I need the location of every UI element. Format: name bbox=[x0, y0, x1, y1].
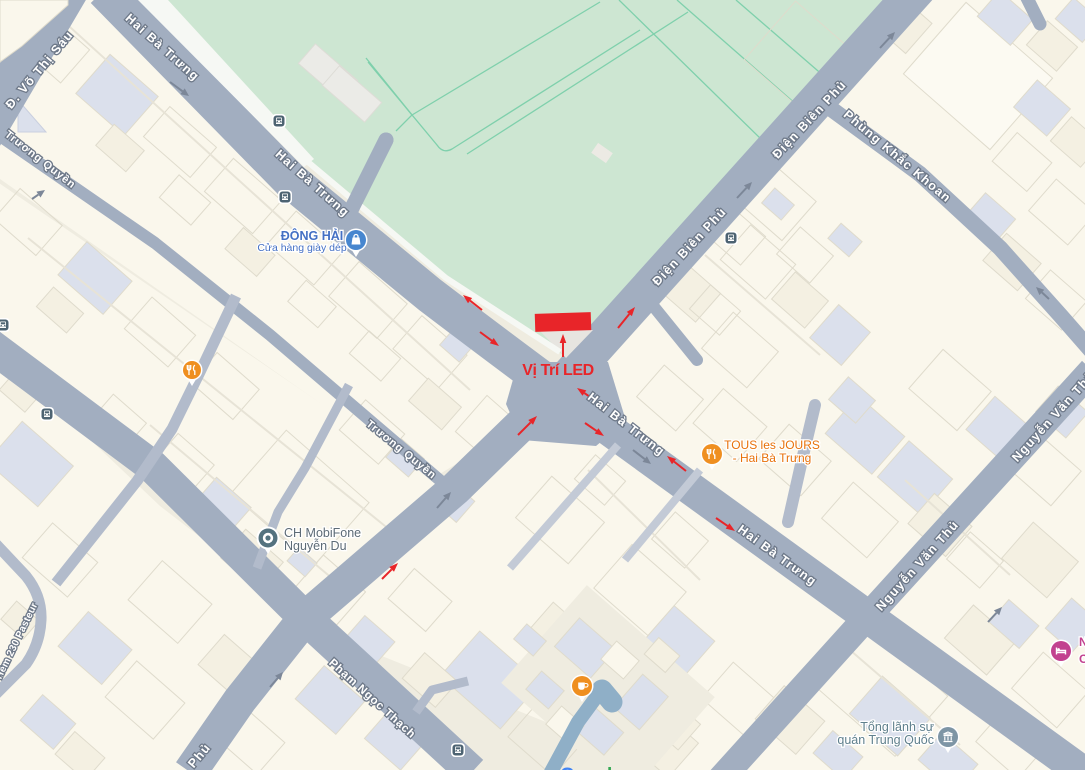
svg-text:Nguyễn Du: Nguyễn Du bbox=[284, 538, 347, 553]
svg-text:o: o bbox=[574, 765, 586, 770]
svg-text:quán Trung Quốc: quán Trung Quốc bbox=[837, 733, 934, 747]
svg-text:Nh: Nh bbox=[1079, 635, 1085, 649]
svg-text:e: e bbox=[612, 765, 623, 770]
svg-text:Vị Trí LED: Vị Trí LED bbox=[522, 362, 594, 379]
svg-text:o: o bbox=[585, 765, 597, 770]
svg-text:Tổng lãnh sự: Tổng lãnh sự bbox=[860, 720, 934, 734]
svg-text:TOUS les JOURS: TOUS les JOURS bbox=[724, 438, 820, 452]
svg-text:Cá: Cá bbox=[1079, 652, 1085, 666]
svg-text:G: G bbox=[560, 765, 575, 770]
svg-text:g: g bbox=[596, 765, 608, 770]
svg-text:Cửa hàng giày dép: Cửa hàng giày dép bbox=[257, 242, 347, 254]
svg-text:CH MobiFone: CH MobiFone bbox=[284, 526, 361, 540]
svg-text:ĐÔNG HẢI: ĐÔNG HẢI bbox=[281, 228, 344, 243]
svg-text:- Hai Bà Trưng: - Hai Bà Trưng bbox=[733, 451, 812, 465]
